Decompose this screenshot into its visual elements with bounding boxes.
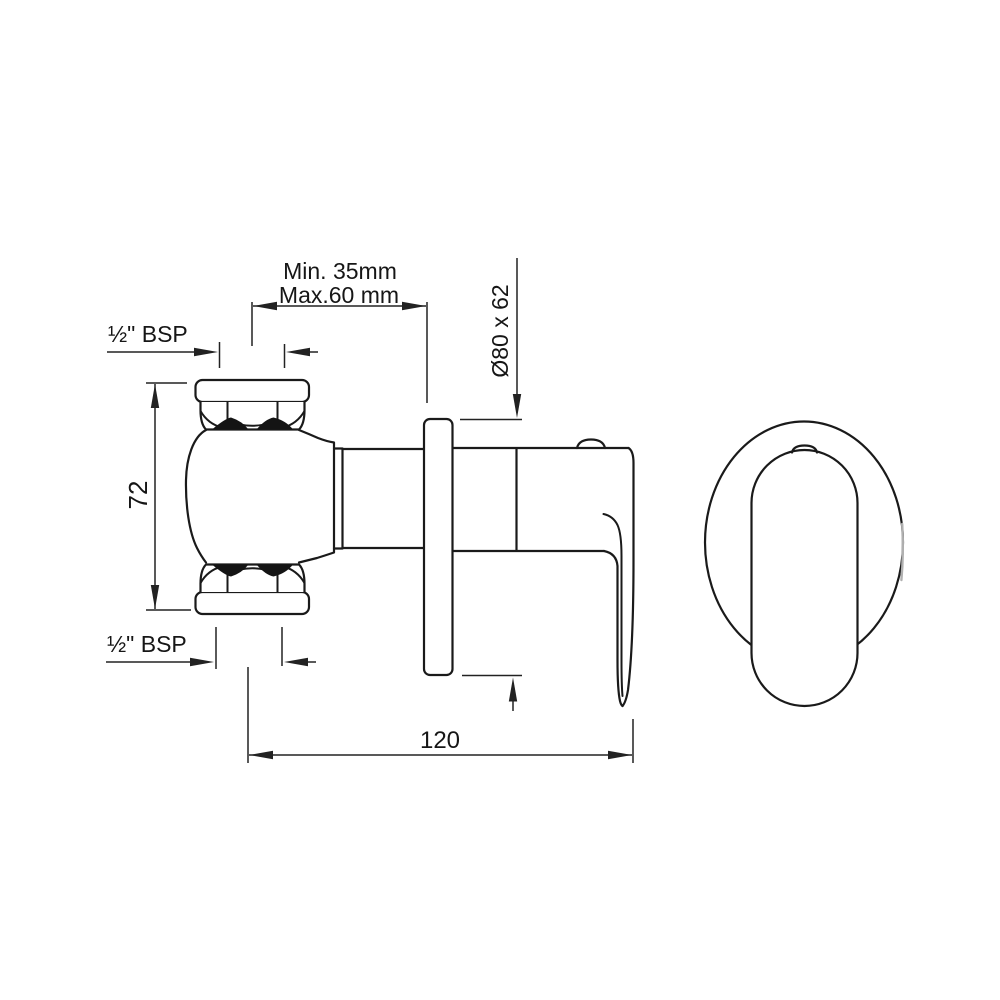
lever-outer-edge — [623, 448, 634, 706]
total-length-label: 120 — [420, 727, 460, 754]
valve-stem-pipe-left — [343, 449, 424, 548]
body-height-label: 72 — [123, 481, 153, 510]
flange-plate — [424, 419, 453, 675]
arrowhead-left-icon — [286, 348, 310, 356]
drawing-canvas: Min. 35mm Max.60 mm Ø80 x 62 72 — [0, 0, 1000, 1000]
arrowhead-left-icon — [249, 751, 273, 759]
outlet-thread-label: ½" BSP — [107, 631, 187, 657]
side-view — [186, 380, 634, 706]
escutcheon-highlight — [901, 524, 902, 580]
arrowhead-down-icon — [151, 585, 159, 609]
lever-front-capsule — [752, 450, 858, 706]
front-view — [705, 422, 903, 707]
dim-bsp-bottom: ½" BSP — [106, 627, 316, 669]
min-depth-label: Min. 35mm — [283, 258, 397, 284]
max-depth-label: Max.60 mm — [279, 282, 399, 308]
arrowhead-up-icon — [151, 384, 159, 408]
arrowhead-up-icon — [509, 678, 517, 702]
dim-body-height: 72 — [123, 383, 191, 610]
dim-bsp-top: ½" BSP — [107, 321, 318, 368]
dim-flange-size: Ø80 x 62 — [460, 258, 522, 711]
arrowhead-down-icon — [513, 394, 521, 418]
arrowhead-right-icon — [190, 658, 214, 666]
flange-size-label: Ø80 x 62 — [487, 284, 513, 377]
arrowhead-right-icon — [608, 751, 632, 759]
hub-button-dome — [577, 440, 605, 449]
valve-collar — [334, 449, 343, 549]
valve-body-right-outline — [299, 430, 334, 563]
arrowhead-left-icon — [253, 302, 277, 310]
dimension-annotations: Min. 35mm Max.60 mm Ø80 x 62 72 — [106, 258, 633, 763]
dim-total-length: 120 — [248, 667, 633, 763]
hex-nut-bottom-cap — [196, 592, 310, 614]
arrowhead-right-icon — [402, 302, 426, 310]
valve-stem-pipe-right — [453, 448, 629, 551]
valve-body-left-outline — [186, 430, 206, 563]
hex-nut-top-cap — [196, 380, 310, 402]
technical-drawing-svg: Min. 35mm Max.60 mm Ø80 x 62 72 — [0, 0, 1000, 1000]
lever-inner-edge — [604, 551, 623, 706]
arrowhead-right-icon — [194, 348, 218, 356]
arrowhead-left-icon — [284, 658, 308, 666]
inlet-thread-label: ½" BSP — [108, 321, 188, 347]
lever-detail-curve — [604, 514, 623, 696]
